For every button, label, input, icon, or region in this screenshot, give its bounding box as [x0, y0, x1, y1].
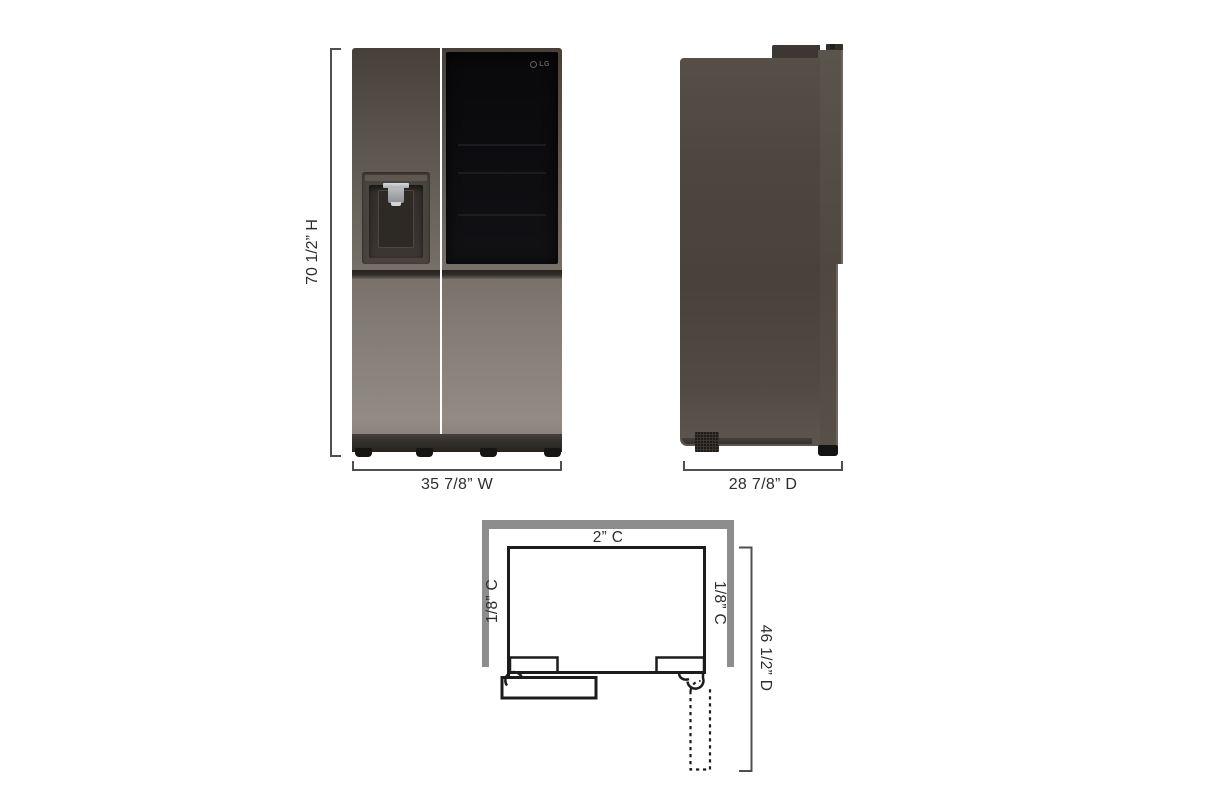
- side-door-front-edge: [841, 50, 843, 264]
- fridge-door-handle-groove: [442, 270, 562, 279]
- instaview-glass-panel: LG: [446, 52, 558, 264]
- instaview-door: LG: [442, 48, 562, 434]
- front-foot: [416, 448, 433, 457]
- refrigerator-front-view: LG: [352, 48, 562, 452]
- front-foot: [544, 448, 561, 457]
- glass-shelf-line: [458, 214, 546, 216]
- product-dimensions-diagram: 70 1/2” H LG: [0, 0, 1214, 806]
- side-door-lower: [817, 264, 838, 446]
- width-dimension-right-tick: [560, 461, 562, 471]
- top-hinge-notch: [830, 44, 835, 49]
- glass-shelf-line: [458, 172, 546, 174]
- water-ice-dispenser: [362, 172, 430, 264]
- side-door-upper: [817, 50, 843, 264]
- dispenser-nozzle-tip: [391, 202, 401, 206]
- left-door-open-outline: [502, 678, 596, 699]
- glass-shelf-line: [458, 144, 546, 146]
- top-clearance-label: 2” C: [593, 529, 623, 546]
- lg-logo-text: LG: [539, 61, 550, 68]
- width-dimension-line: [352, 469, 562, 471]
- vent-grille-icon: [695, 432, 719, 452]
- wall-top: [482, 520, 734, 529]
- front-base-kickplate: [352, 434, 562, 452]
- side-door-front-edge: [836, 264, 838, 446]
- freezer-door: [352, 48, 440, 434]
- height-dimension-label: 70 1/2” H: [302, 192, 324, 312]
- plan-depth-dimension-line: [739, 548, 752, 772]
- depth-dimension-label: 28 7/8” D: [683, 476, 843, 494]
- lg-logo: LG: [530, 61, 550, 68]
- dispenser-control-panel: [365, 175, 427, 181]
- front-foot: [480, 448, 497, 457]
- lg-emblem-icon: [530, 61, 537, 68]
- height-dimension-line: [330, 48, 332, 457]
- side-cabinet-panel: [680, 58, 820, 446]
- freezer-door-handle-groove: [352, 270, 440, 279]
- dispenser-nozzle-stem: [388, 188, 404, 203]
- plan-depth-label: 46 1/2” D: [757, 625, 774, 691]
- refrigerator-side-view: [680, 44, 843, 456]
- left-clearance-label: 1/8” C: [484, 579, 501, 623]
- side-foot: [818, 445, 838, 456]
- height-dimension-bottom-tick: [330, 455, 341, 457]
- depth-dimension-line: [683, 469, 843, 471]
- depth-dimension-left-tick: [683, 461, 685, 471]
- top-hinge-cover: [772, 45, 820, 58]
- front-foot: [355, 448, 372, 457]
- right-door-swing-outline: [691, 689, 711, 770]
- fridge-footprint-outline: [509, 548, 705, 673]
- right-clearance-label: 1/8” C: [711, 581, 728, 625]
- width-dimension-left-tick: [352, 461, 354, 471]
- top-down-clearance-diagram: 2” C 1/8” C 1/8” C 46 1/2” D: [470, 510, 780, 806]
- width-dimension-label: 35 7/8” W: [352, 476, 562, 494]
- depth-dimension-right-tick: [841, 461, 843, 471]
- height-dimension-top-tick: [330, 48, 341, 50]
- dispenser-recess: [369, 185, 423, 258]
